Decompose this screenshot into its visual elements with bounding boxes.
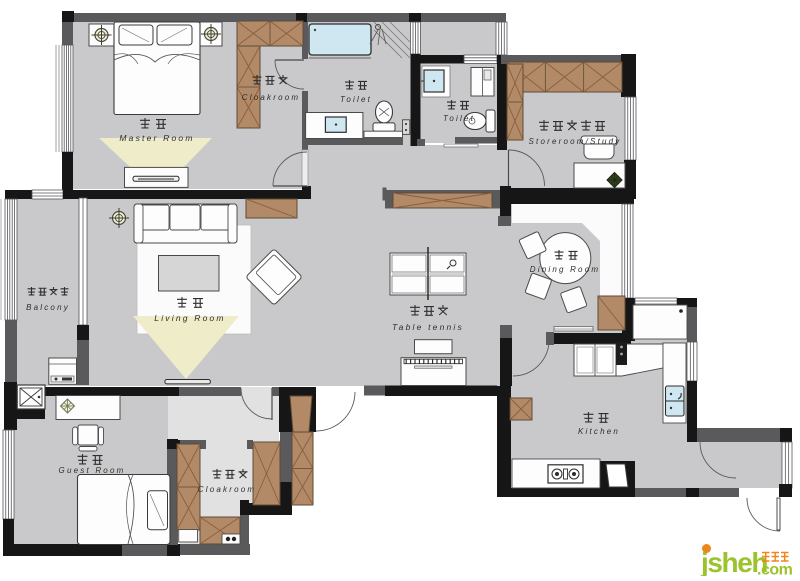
svg-text:Dining Room: Dining Room	[530, 265, 600, 274]
svg-text:Kitchen: Kitchen	[578, 427, 620, 436]
svg-text:Storeroom/Study: Storeroom/Study	[528, 137, 621, 146]
svg-text:Master Room: Master Room	[119, 133, 194, 143]
svg-text:Living Room: Living Room	[154, 313, 225, 323]
svg-text:Table tennis: Table tennis	[392, 322, 464, 332]
svg-text:Guest Room: Guest Room	[59, 466, 126, 475]
svg-text:.com: .com	[757, 562, 793, 577]
svg-text:Cloakroom: Cloakroom	[242, 93, 300, 102]
svg-text:Toilet: Toilet	[443, 114, 475, 123]
svg-text:Toilet: Toilet	[340, 95, 372, 104]
svg-text:Balcony: Balcony	[26, 303, 70, 312]
svg-text:Cloakroom: Cloakroom	[198, 485, 256, 494]
